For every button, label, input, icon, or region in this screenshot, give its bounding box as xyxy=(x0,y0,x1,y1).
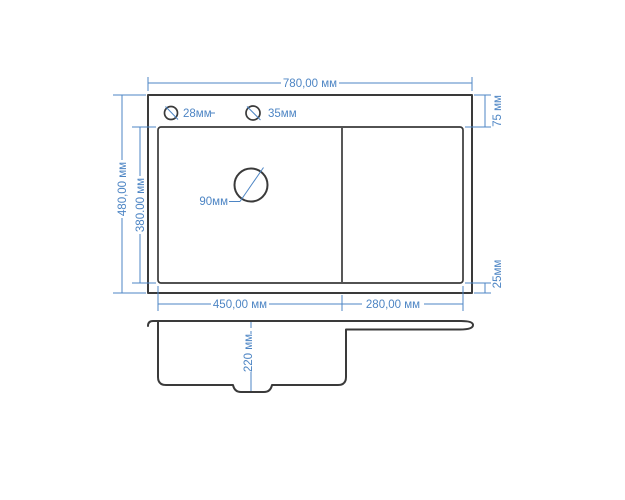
dim-top-offset-label: 75 мм xyxy=(492,95,504,127)
technical-drawing-svg: 28мм 35мм 90мм 780,00 мм 75 мм 480,00 мм… xyxy=(0,0,625,500)
sink-dimension-drawing: 28мм 35мм 90мм 780,00 мм 75 мм 480,00 мм… xyxy=(0,0,625,500)
dim-total-depth-label: 480,00 мм xyxy=(117,162,129,216)
dim-bottom-offset-label: 25мм xyxy=(492,260,504,289)
dim-total-width-label: 780,00 мм xyxy=(283,78,337,90)
drain-hole-diameter-line xyxy=(240,168,264,202)
tap-hole-small-label: 28мм xyxy=(183,108,212,120)
tap-hole-large-label: 35мм xyxy=(268,108,297,120)
drain-hole-label: 90мм xyxy=(199,196,228,208)
dim-bowl-width-label: 450,00 мм xyxy=(213,299,267,311)
sink-outer-rim xyxy=(148,95,472,293)
dim-bowl-depth-label: 380.00 мм xyxy=(135,178,147,232)
dim-drainboard-width-label: 280,00 мм xyxy=(366,299,420,311)
dim-bowl-height-label: 220 мм xyxy=(243,334,255,372)
side-rim-profile xyxy=(148,321,473,330)
